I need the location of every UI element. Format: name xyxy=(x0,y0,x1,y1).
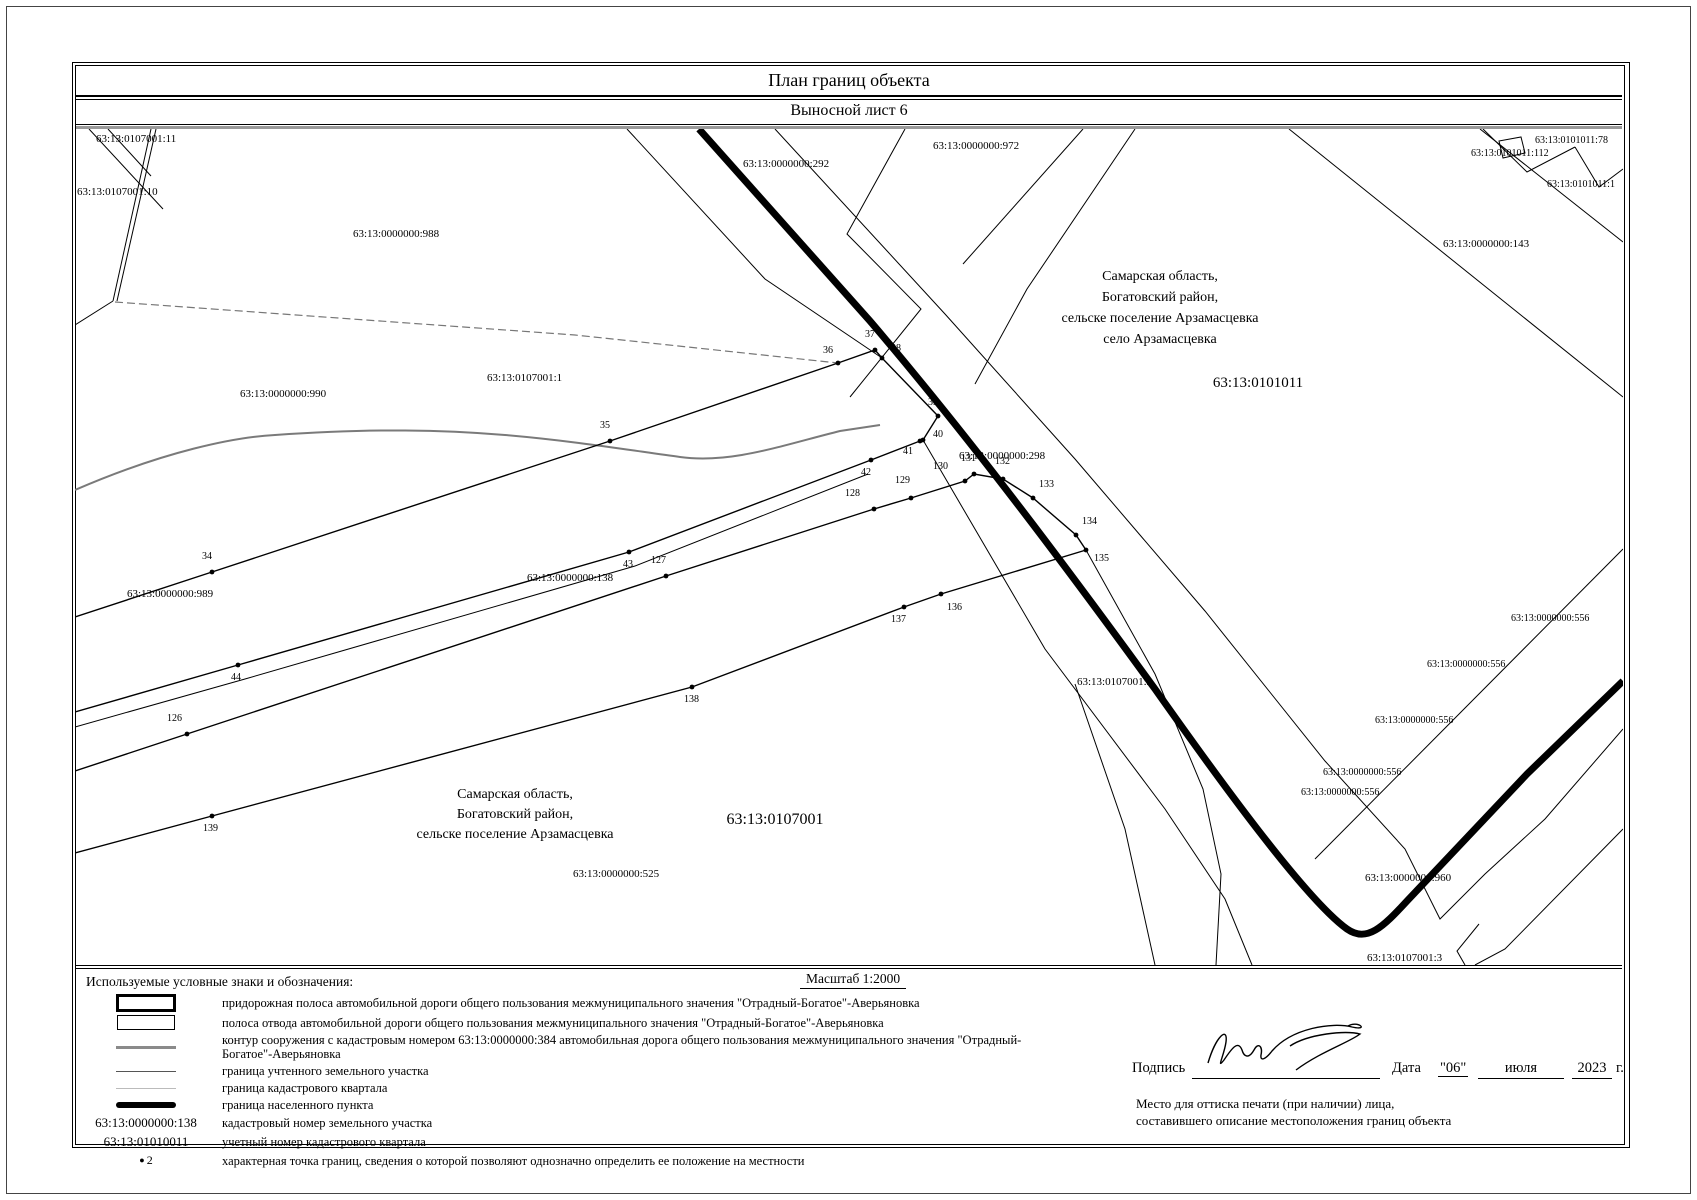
map-boundary-point xyxy=(869,458,874,463)
stamp-note-line2: составившего описание местоположения гра… xyxy=(1136,1113,1451,1129)
map-boundary-point xyxy=(1031,496,1036,501)
legend-symbol-line-thick-icon xyxy=(116,1102,176,1108)
map-cadastral-label: 63:13:0000000:556 xyxy=(1301,787,1379,798)
legend-symbol-line-thin-icon xyxy=(116,1071,176,1072)
legend-row: 63:13:01010011учетный номер кадастрового… xyxy=(88,1134,1028,1150)
map-boundary-line xyxy=(1075,684,1155,965)
legend-symbol: 2 xyxy=(88,1153,204,1168)
legend-row-text: характерная точка границ, сведения о кот… xyxy=(222,1154,804,1168)
legend-symbol-rect-thin-icon xyxy=(117,1015,175,1030)
map-point-number: 35 xyxy=(600,420,610,431)
legend-symbol: 63:13:0000000:138 xyxy=(88,1115,204,1131)
map-cadastral-label: Богатовский район, xyxy=(1102,290,1218,305)
legend-row-text: граница учтенного земельного участка xyxy=(222,1064,429,1078)
legend-row-text: учетный номер кадастрового квартала xyxy=(222,1135,426,1149)
legend-row: полоса отвода автомобильной дороги общег… xyxy=(88,1015,1028,1030)
map-point-number: 126 xyxy=(167,713,182,724)
map-boundary-line xyxy=(1315,549,1623,859)
legend-top-border-2 xyxy=(76,968,1622,969)
map-cadastral-label: 63:13:0000000:972 xyxy=(933,140,1019,152)
map-point-number: 127 xyxy=(651,555,666,566)
map-point-number: 39 xyxy=(928,397,938,408)
map-point-number: 136 xyxy=(947,602,962,613)
map-point-number: 36 xyxy=(823,345,833,356)
title-divider xyxy=(76,95,1622,97)
date-year-line xyxy=(1572,1078,1612,1079)
title-divider-2 xyxy=(76,99,1622,100)
map-cadastral-label: 63:13:0000000:525 xyxy=(573,868,660,880)
map-cadastral-label: 63:13:0107001:11 xyxy=(96,133,176,145)
scale-label: Масштаб 1:2000 xyxy=(800,971,906,989)
subtitle-divider xyxy=(76,124,1622,125)
map-boundary-line xyxy=(75,425,880,490)
map-boundary-point xyxy=(963,479,968,484)
map-cadastral-label: 63:13:0000000:990 xyxy=(240,388,327,400)
map-boundary-point xyxy=(873,348,878,353)
map-boundary-point xyxy=(1001,477,1006,482)
sheet-subtitle: Выносной лист 6 xyxy=(76,102,1622,120)
map-cadastral-label: 63:13:0000000:960 xyxy=(1365,872,1452,884)
map-point-number: 44 xyxy=(231,672,241,683)
map-cadastral-label: 63:13:0000000:556 xyxy=(1511,613,1589,624)
document-page: План границ объекта Выносной лист 6 63:1… xyxy=(0,0,1697,1200)
map-boundary-point xyxy=(972,472,977,477)
date-day: "06" xyxy=(1438,1060,1468,1077)
map-cadastral-label: Богатовский район, xyxy=(457,807,573,822)
map-boundary-point xyxy=(936,414,941,419)
map-point-number: 37 xyxy=(865,329,875,340)
page-title: План границ объекта xyxy=(76,70,1622,91)
map-cadastral-label: 63:13:0101011:78 xyxy=(1535,135,1608,146)
map-cadastral-label: Самарская область, xyxy=(1102,269,1218,284)
map-cadastral-label: 63:13:0107001 xyxy=(727,811,824,828)
legend-row: граница кадастрового квартала xyxy=(88,1081,1028,1095)
signature-line xyxy=(1192,1078,1380,1079)
legend-row-text: придорожная полоса автомобильной дороги … xyxy=(222,996,920,1010)
map-boundary-point xyxy=(664,574,669,579)
date-day-value: "06" xyxy=(1438,1060,1468,1077)
map-boundary-point xyxy=(939,592,944,597)
legend-top-border xyxy=(76,965,1622,966)
map-point-number: 42 xyxy=(861,467,871,478)
legend-row: 2характерная точка границ, сведения о ко… xyxy=(88,1153,1028,1168)
map-point-number: 41 xyxy=(903,446,913,457)
legend-symbol-line-faint-icon xyxy=(116,1088,176,1089)
map-boundary-line xyxy=(115,302,838,363)
date-label: Дата xyxy=(1392,1060,1421,1077)
map-boundary-point xyxy=(1074,533,1079,538)
map-cadastral-label: 63:13:0000000:556 xyxy=(1427,659,1505,670)
legend-symbol xyxy=(88,1015,204,1030)
map-cadastral-label: 63:13:0000000:989 xyxy=(127,588,214,600)
map-boundary-point xyxy=(690,685,695,690)
map-boundary-line xyxy=(75,301,113,325)
map-boundary-line xyxy=(1475,829,1623,965)
map-cadastral-label: село Арзамасцевка xyxy=(1103,332,1217,347)
map-boundary-line xyxy=(1457,924,1479,965)
legend-row: придорожная полоса автомобильной дороги … xyxy=(88,994,1028,1012)
legend-rows: придорожная полоса автомобильной дороги … xyxy=(88,994,1028,1171)
map-cadastral-label: 63:13:0107001:3 xyxy=(1367,952,1443,964)
map-cadastral-label: 63:13:0000000:143 xyxy=(1443,238,1530,250)
map-point-number: 129 xyxy=(895,475,910,486)
stamp-note-line1: Место для оттиска печати (при наличии) л… xyxy=(1136,1096,1394,1112)
map-boundary-point xyxy=(872,507,877,512)
legend-row-text: граница кадастрового квартала xyxy=(222,1081,387,1095)
map-cadastral-label: 63:13:0000000:988 xyxy=(353,228,440,240)
map-boundary-point xyxy=(902,605,907,610)
map-boundary-line xyxy=(75,363,838,617)
date-year-suffix: г. xyxy=(1616,1060,1624,1077)
map-cadastral-label: Самарская область, xyxy=(457,787,573,802)
map-point-number: 43 xyxy=(623,559,633,570)
legend-title: Используемые условные знаки и обозначени… xyxy=(86,974,353,990)
legend-symbol: 63:13:01010011 xyxy=(88,1134,204,1150)
date-year: 2023 xyxy=(1572,1060,1612,1077)
legend-row: граница учтенного земельного участка xyxy=(88,1064,1028,1078)
map-cadastral-label: сельске поселение Арзамасцевка xyxy=(1061,311,1259,326)
legend-symbol-line-gray-icon xyxy=(116,1046,176,1049)
map-cadastral-label: 63:13:0101011:1 xyxy=(1547,179,1615,190)
legend-row-text: контур сооружения с кадастровым номером … xyxy=(222,1033,1028,1061)
map-point-number: 137 xyxy=(891,614,906,625)
legend-row: контур сооружения с кадастровым номером … xyxy=(88,1033,1028,1061)
legend-symbol-rect-thick-icon xyxy=(116,994,176,1012)
legend-symbol xyxy=(88,1046,204,1049)
legend-symbol xyxy=(88,1102,204,1108)
map-cadastral-label: 63:13:0000000:556 xyxy=(1375,715,1453,726)
map-cadastral-label: 63:13:0107001:1 xyxy=(487,372,562,384)
legend-symbol xyxy=(88,1071,204,1072)
map-point-number: 139 xyxy=(203,823,218,834)
map-boundary-line xyxy=(1289,129,1623,397)
map-boundary-point xyxy=(210,570,215,575)
legend-row-text: кадастровый номер земельного участка xyxy=(222,1116,432,1130)
legend-row-text: полоса отвода автомобильной дороги общег… xyxy=(222,1016,884,1030)
legend-symbol-text-icon: 63:13:01010011 xyxy=(104,1134,189,1150)
signature-scribble xyxy=(1200,1018,1385,1078)
legend-row-text: граница населенного пункта xyxy=(222,1098,373,1112)
legend-symbol xyxy=(88,1088,204,1089)
signature-label: Подпись xyxy=(1132,1060,1185,1077)
map-cadastral-label: 63:13:0101011:112 xyxy=(1471,148,1549,159)
date-month: июля xyxy=(1478,1060,1564,1077)
map-boundary-point xyxy=(918,439,923,444)
map-svg: 63:13:0107001:1163:13:0107001:1063:13:00… xyxy=(75,129,1623,965)
map-point-number: 40 xyxy=(933,429,943,440)
map-point-number: 131 xyxy=(961,453,976,464)
legend-symbol xyxy=(88,994,204,1012)
map-boundary-point xyxy=(880,356,885,361)
cadastral-map: 63:13:0107001:1163:13:0107001:1063:13:00… xyxy=(75,129,1623,965)
map-cadastral-label: 63:13:0000000:138 xyxy=(527,572,614,584)
map-boundary-point xyxy=(1084,548,1089,553)
map-boundary-line xyxy=(75,474,868,727)
map-cadastral-label: 63:13:0107001:2 xyxy=(1077,676,1152,688)
map-boundary-point xyxy=(236,663,241,668)
map-boundary-point xyxy=(627,550,632,555)
map-cadastral-label: 63:13:0000000:292 xyxy=(743,158,829,170)
map-boundary-line xyxy=(75,474,1086,771)
map-boundary-point xyxy=(608,439,613,444)
legend-row: 63:13:0000000:138кадастровый номер земел… xyxy=(88,1115,1028,1131)
map-cadastral-label: 63:13:0107001:10 xyxy=(77,186,158,198)
map-boundary-line xyxy=(75,350,938,712)
map-boundary-point xyxy=(909,496,914,501)
map-point-number: 128 xyxy=(845,488,860,499)
map-boundary-point xyxy=(185,732,190,737)
legend-symbol-point-icon: 2 xyxy=(139,1153,152,1168)
map-point-number: 34 xyxy=(202,551,212,562)
map-point-number: 135 xyxy=(1094,553,1109,564)
map-point-number: 38 xyxy=(891,343,901,354)
map-point-number: 134 xyxy=(1082,516,1097,527)
legend-symbol-text-icon: 63:13:0000000:138 xyxy=(95,1115,197,1131)
map-cadastral-label: сельске поселение Арзамасцевка xyxy=(416,827,614,842)
map-boundary-line xyxy=(117,129,156,301)
map-cadastral-label: 63:13:0101011 xyxy=(1213,375,1303,391)
legend-row: граница населенного пункта xyxy=(88,1098,1028,1112)
map-point-number: 133 xyxy=(1039,479,1054,490)
map-point-number: 138 xyxy=(684,694,699,705)
map-cadastral-label: 63:13:0000000:556 xyxy=(1323,767,1401,778)
map-boundary-point xyxy=(836,361,841,366)
map-boundary-line xyxy=(75,550,1086,853)
map-boundary-point xyxy=(210,814,215,819)
map-point-number: 130 xyxy=(933,461,948,472)
date-month-line xyxy=(1478,1078,1564,1079)
map-point-number: 132 xyxy=(995,456,1010,467)
